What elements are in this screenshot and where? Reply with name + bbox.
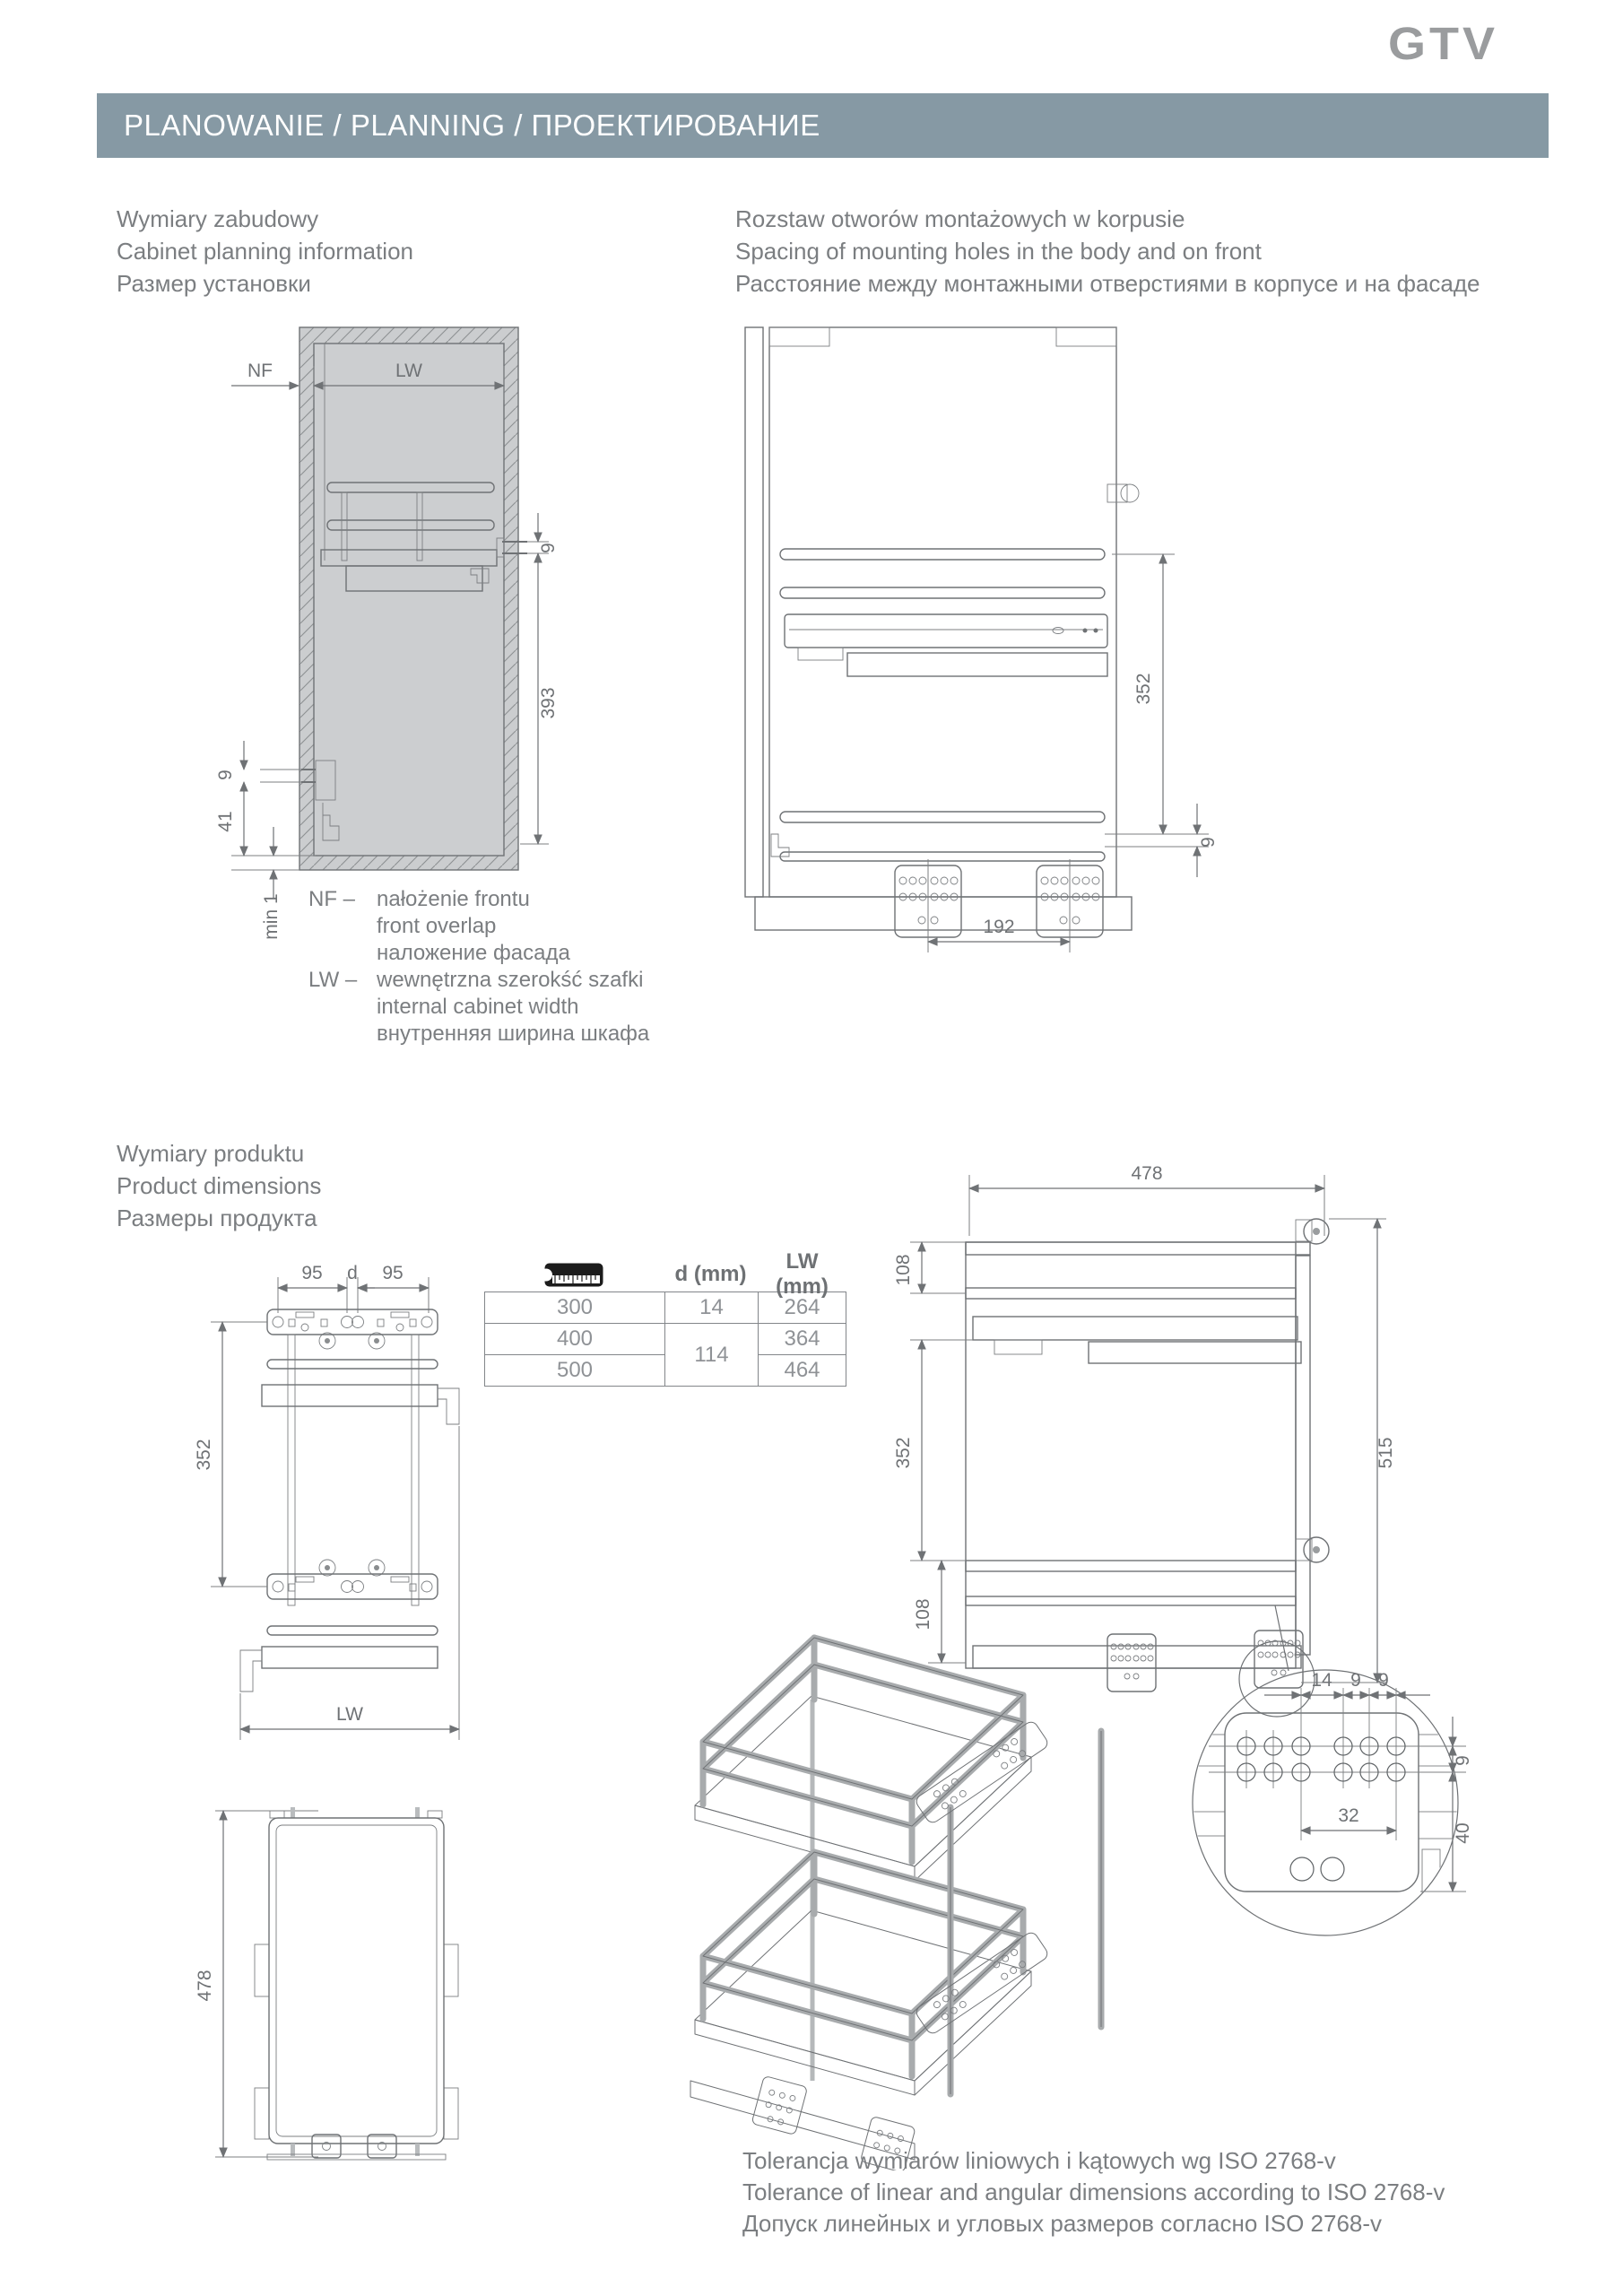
dim-label-352: 352 <box>194 1439 214 1470</box>
legend-nf-abbr: NF – <box>308 886 377 967</box>
header-bar: PLANOWANIE / PLANNING / ПРОЕКТИРОВАНИЕ <box>97 93 1549 158</box>
cabinet-body <box>299 327 518 870</box>
cell-width-500: 500 <box>485 1355 665 1387</box>
table-header-row: d (mm) LW (mm) <box>484 1257 846 1291</box>
gtv-logo: GTV <box>1388 18 1498 71</box>
legend-nf: NF – nałożenie frontu front overlap нало… <box>308 886 649 967</box>
diagram-bracket-detail: 14 9 9 9 40 32 <box>1157 1605 1515 1964</box>
heading-line: Cabinet planning information <box>117 235 413 267</box>
dimension-min1: min 1 <box>231 827 299 940</box>
table-row: 400 114 364 <box>485 1324 846 1355</box>
dimension-95-d-95: 95 d 95 <box>278 1263 429 1313</box>
column-header-d: d (mm) <box>664 1262 758 1287</box>
lower-mounting-plate <box>267 1560 438 1599</box>
dim-label-9-left: 9 <box>215 770 236 780</box>
dim-label-32: 32 <box>1338 1805 1358 1826</box>
heading-product-dimensions: Wymiary produktu Product dimensions Разм… <box>117 1137 321 1234</box>
slide-rails <box>755 484 1139 930</box>
dim-label-478: 478 <box>195 1970 215 2001</box>
cell-lw-364: 364 <box>759 1324 846 1355</box>
cell-lw-464: 464 <box>759 1355 846 1387</box>
heading-hole-spacing: Rozstaw otworów montażowych w korpusie S… <box>735 203 1480 300</box>
heading-cabinet-planning: Wymiary zabudowy Cabinet planning inform… <box>117 203 413 300</box>
dimension-9: 9 <box>1105 804 1219 877</box>
dimension-32: 32 <box>1301 1805 1396 1831</box>
upper-mounting-plate <box>267 1309 438 1349</box>
dim-label-d: d <box>347 1263 358 1283</box>
dim-label-9b: 9 <box>1378 1670 1389 1691</box>
dimension-478: 478 <box>195 1811 318 2157</box>
heading-line: Spacing of mounting holes in the body an… <box>735 235 1480 267</box>
heading-line: Размеры продукта <box>117 1202 321 1234</box>
slide-stubs <box>1176 1735 1460 1899</box>
dim-label-9a: 9 <box>1350 1670 1361 1691</box>
basket-tier-bottom <box>695 1852 1031 2095</box>
ruler-icon <box>484 1263 664 1287</box>
legend-nf-line: наложение фасада <box>377 940 570 967</box>
dim-label-95-left: 95 <box>301 1263 322 1283</box>
diagram-isometric <box>556 1578 1130 2170</box>
cell-width-300: 300 <box>485 1292 665 1324</box>
dim-label-9-right: 9 <box>1453 1755 1473 1766</box>
dim-label-108-top: 108 <box>893 1254 914 1285</box>
dimension-393: 393 <box>520 553 559 844</box>
tolerance-line: Допуск линейных и угловых размеров согла… <box>742 2208 1445 2239</box>
dim-label-14: 14 <box>1311 1670 1332 1691</box>
dim-label-95-right: 95 <box>382 1263 403 1283</box>
diagram-mounting-holes: 192 352 9 <box>744 314 1264 960</box>
diagram-tray-front: 478 <box>161 1785 538 2269</box>
legend-lw: LW – wewnętrzna szerokść szafki internal… <box>308 967 649 1048</box>
diagram-cabinet-section: NF LW 9 393 9 41 <box>126 314 592 942</box>
dim-label-393: 393 <box>538 687 559 718</box>
heading-line: Rozstaw otworów montażowych w korpusie <box>735 203 1480 235</box>
legend-lw-abbr: LW – <box>308 967 377 1048</box>
dim-label-40: 40 <box>1453 1822 1473 1843</box>
tolerance-line: Tolerancja wymiarów liniowych i kątowych… <box>742 2145 1445 2177</box>
basket-tier-top <box>695 1638 1031 1881</box>
detail-leader-line <box>1275 1605 1289 1671</box>
dimension-352: 352 <box>893 1340 973 1561</box>
heading-line: Wymiary zabudowy <box>117 203 413 235</box>
cell-width-400: 400 <box>485 1324 665 1355</box>
dim-label-478: 478 <box>1131 1163 1162 1184</box>
legend-lw-line: wewnętrzna szerokść szafki <box>377 967 649 994</box>
dim-label-lw: LW <box>395 361 422 381</box>
dimension-table: d (mm) LW (mm) 300 14 264 400 114 364 50… <box>484 1257 846 1387</box>
heading-line: Product dimensions <box>117 1170 321 1202</box>
tolerance-line: Tolerance of linear and angular dimensio… <box>742 2177 1445 2208</box>
dim-label-352: 352 <box>893 1437 914 1468</box>
catalog-page: GTV PLANOWANIE / PLANNING / ПРОЕКТИРОВАН… <box>0 0 1623 2296</box>
table-row: 300 14 264 <box>485 1292 846 1324</box>
dim-label-lw: LW <box>336 1704 363 1725</box>
heading-line: Расстояние между монтажными отверстиями … <box>735 267 1480 300</box>
table-grid: 300 14 264 400 114 364 500 464 <box>484 1291 846 1387</box>
frame-rails <box>240 1335 459 1692</box>
cell-d-114: 114 <box>665 1324 759 1387</box>
legend-block: NF – nałożenie frontu front overlap нало… <box>308 886 649 1048</box>
dimension-352: 352 <box>1112 554 1175 834</box>
dimension-108-top: 108 <box>893 1242 966 1293</box>
hole-grid <box>1209 1688 1466 1881</box>
column-header-lw: LW (mm) <box>758 1249 846 1300</box>
dim-label-9: 9 <box>1198 837 1219 848</box>
dim-label-nf: NF <box>247 361 273 381</box>
dimension-192: 192 <box>928 859 1070 952</box>
page-title: PLANOWANIE / PLANNING / ПРОЕКТИРОВАНИЕ <box>97 109 820 143</box>
cell-d-14: 14 <box>665 1292 759 1324</box>
dimension-9-40-right: 9 40 <box>1420 1717 1473 1892</box>
dim-label-192: 192 <box>983 917 1014 937</box>
dimension-lw: LW <box>240 1426 459 1740</box>
legend-nf-line: front overlap <box>377 913 570 940</box>
legend-nf-line: nałożenie frontu <box>377 886 570 913</box>
dimension-9-left: 9 <box>215 741 301 782</box>
legend-lw-line: internal cabinet width <box>377 994 649 1021</box>
tray-body <box>255 1807 458 2160</box>
legend-lw-line: внутренняя ширина шкафа <box>377 1021 649 1048</box>
dim-label-9-right: 9 <box>538 543 559 553</box>
dim-label-min1: min 1 <box>261 893 282 939</box>
tolerance-note: Tolerancja wymiarów liniowych i kątowych… <box>742 2145 1445 2239</box>
dimension-352-left: 352 <box>194 1322 267 1587</box>
dim-label-515: 515 <box>1376 1437 1396 1468</box>
dim-label-352: 352 <box>1133 673 1154 704</box>
dim-label-41: 41 <box>215 811 236 831</box>
dimension-nf: NF <box>231 361 299 386</box>
dimension-14-9-9: 14 9 9 <box>1264 1670 1430 1695</box>
diagram-top-view: 95 d 95 <box>161 1256 538 1758</box>
heading-line: Wymiary produktu <box>117 1137 321 1170</box>
heading-line: Размер установки <box>117 267 413 300</box>
dimension-478: 478 <box>969 1163 1324 1236</box>
dimension-9-right: 9 <box>527 513 559 553</box>
